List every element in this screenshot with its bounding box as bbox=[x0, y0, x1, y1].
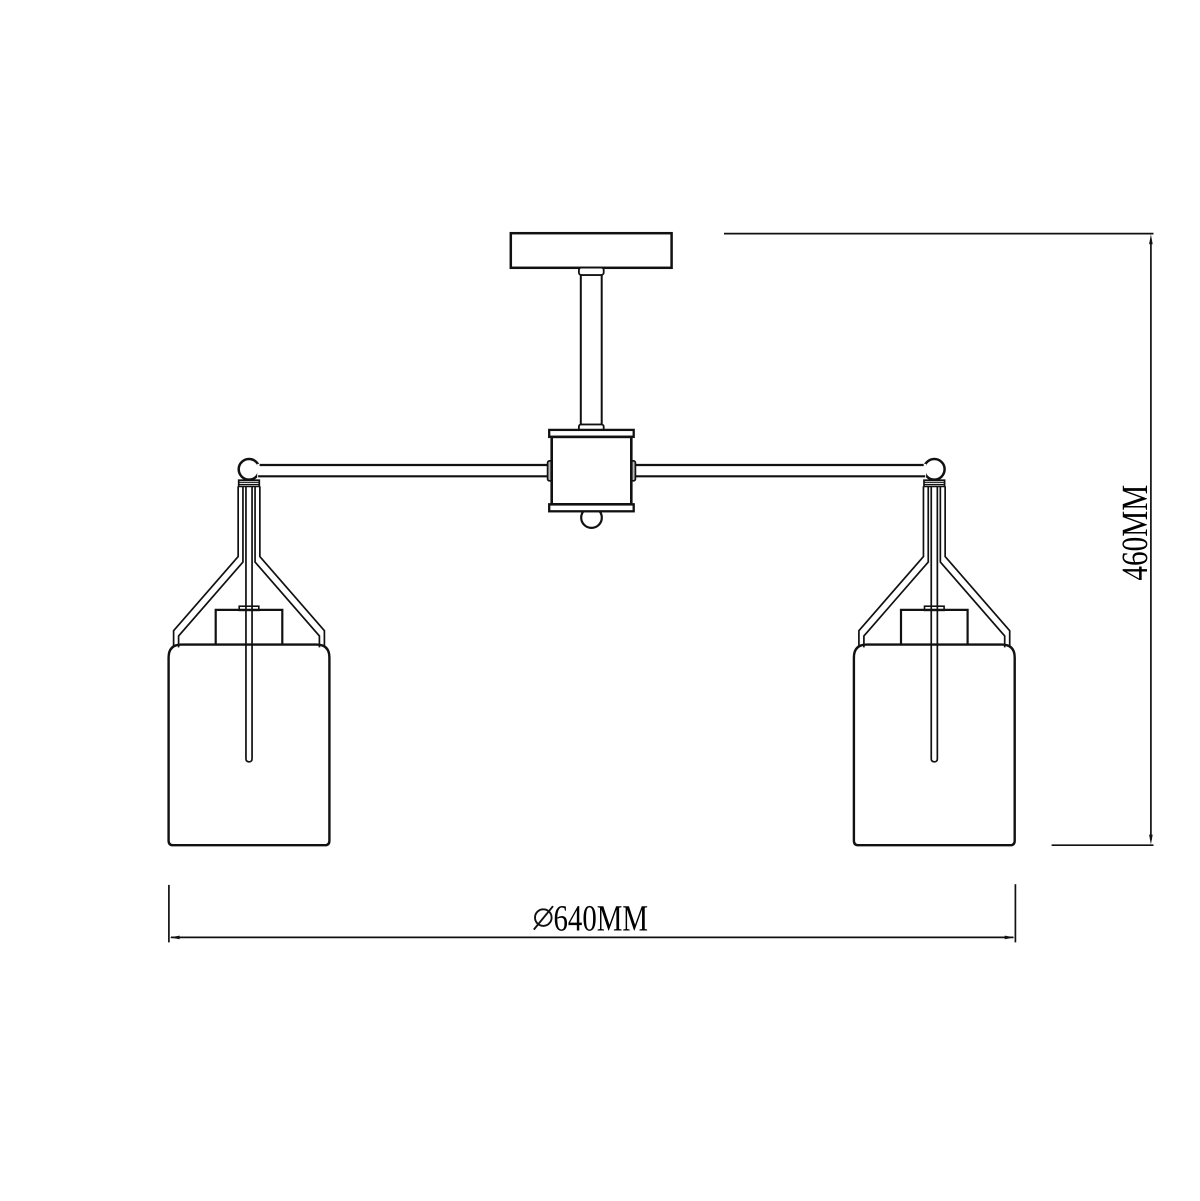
svg-text:460MM: 460MM bbox=[1115, 485, 1156, 581]
svg-text:640MM: 640MM bbox=[554, 898, 649, 939]
